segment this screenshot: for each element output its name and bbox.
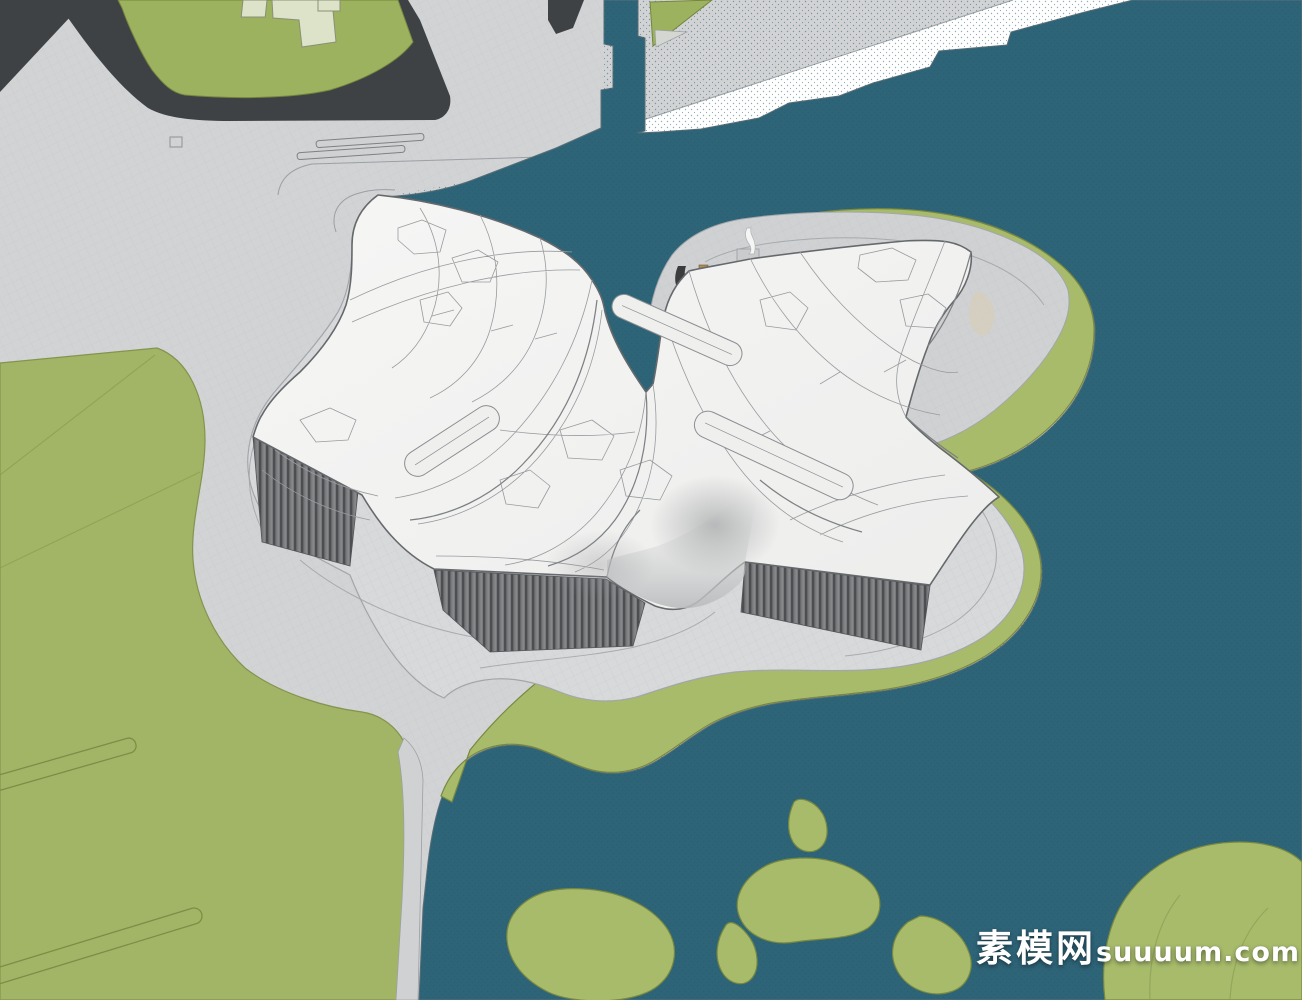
render-canvas: 素模网suuuum.com [0,0,1302,1000]
watermark: 素模网suuuum.com [976,918,1300,972]
scene-svg [0,0,1302,1000]
watermark-domain: suuuum.com [1096,937,1300,968]
watermark-site-name: 素模网 [976,918,1096,972]
